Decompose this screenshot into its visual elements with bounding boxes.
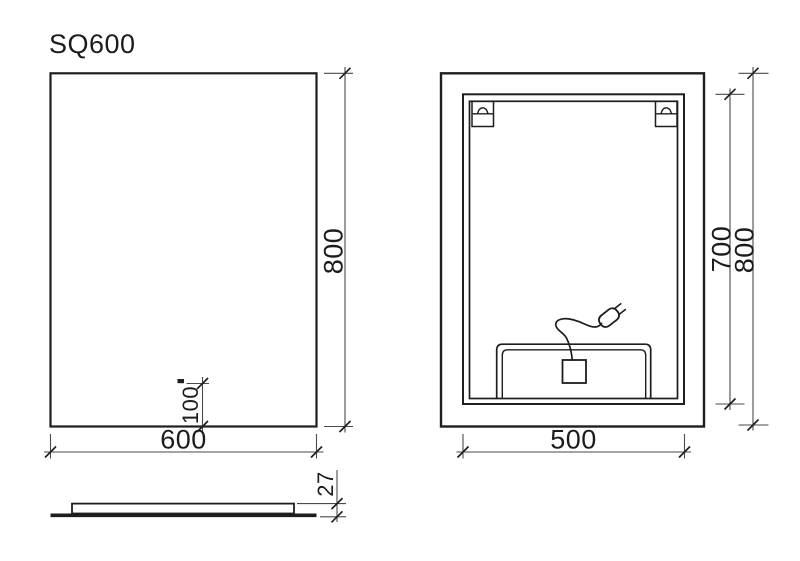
driver-housing: [497, 344, 651, 398]
drawing-linework: [0, 0, 800, 561]
hanging-bracket-left: [472, 101, 494, 126]
side-view: [51, 504, 317, 516]
keyhole-slot-icon: [661, 108, 672, 114]
dim-sensor-offset-label: 100: [180, 386, 202, 424]
back-view: [441, 73, 704, 426]
dim-front-height-label: 800: [320, 228, 347, 275]
mirror-front-outline: [51, 73, 317, 426]
front-view: [51, 73, 317, 426]
dim-thickness-label: 27: [315, 471, 337, 496]
hanging-bracket-right: [656, 101, 678, 126]
power-plug-icon: [597, 301, 628, 329]
power-cable: [556, 319, 602, 360]
touch-sensor-mark: [178, 379, 185, 383]
technical-drawing-sheet: SQ600 800 600 100 700 800 500 27: [0, 0, 800, 561]
keyhole-slot-icon: [478, 108, 489, 114]
dim-front-width-label: 600: [160, 427, 207, 454]
dim-back-frame-width-label: 500: [550, 427, 597, 454]
dim-back-height-label: 800: [731, 227, 758, 274]
model-title: SQ600: [49, 31, 136, 58]
frame-edge: [72, 504, 294, 514]
junction-box: [563, 360, 587, 383]
